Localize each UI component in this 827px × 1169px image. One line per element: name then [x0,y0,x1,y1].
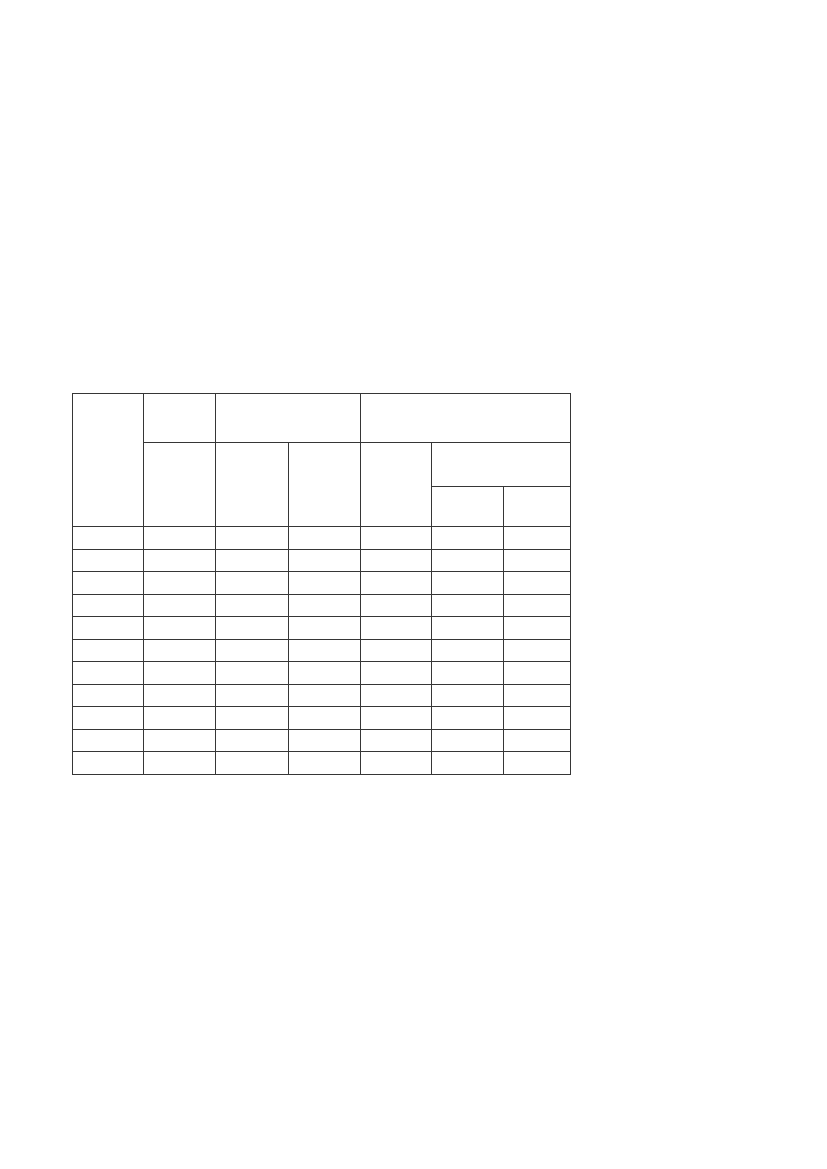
body-cell [361,549,432,572]
header-cell-col6-7-group [432,443,571,487]
body-cell [361,729,432,752]
body-cell [216,662,289,685]
body-cell [289,729,361,752]
body-cell [504,729,571,752]
body-cell [432,684,504,707]
body-cell [504,662,571,685]
document-page [0,0,827,1169]
body-cell [361,594,432,617]
body-cell [361,752,432,775]
body-cell [504,527,571,550]
body-cell [432,527,504,550]
body-cell [144,752,216,775]
body-cell [361,707,432,730]
body-cell [289,527,361,550]
header-cell-col5-7-group [361,394,571,443]
body-cell [289,572,361,595]
body-cell [361,527,432,550]
body-cell [73,572,144,595]
body-cell [432,572,504,595]
body-cell [432,594,504,617]
body-cell [361,684,432,707]
body-cell [216,752,289,775]
body-cell [73,527,144,550]
body-cell [504,594,571,617]
body-cell [144,729,216,752]
body-cell [289,639,361,662]
body-cell [144,707,216,730]
body-cell [216,549,289,572]
table-row [73,729,571,752]
body-cell [144,684,216,707]
body-cell [73,729,144,752]
header-row-1 [73,394,571,443]
body-cell [144,662,216,685]
body-cell [504,549,571,572]
body-cell [289,752,361,775]
body-cell [73,594,144,617]
body-cell [289,684,361,707]
header-cell-col2 [144,443,216,527]
body-cell [289,707,361,730]
body-cell [432,752,504,775]
body-cell [504,639,571,662]
body-cell [73,549,144,572]
body-cell [144,572,216,595]
header-cell-col6 [432,487,504,527]
body-cell [144,549,216,572]
body-cell [289,549,361,572]
body-cell [361,572,432,595]
body-cell [432,707,504,730]
body-cell [144,617,216,640]
body-cell [432,617,504,640]
body-cell [361,662,432,685]
table-row [73,549,571,572]
body-cell [73,617,144,640]
body-cell [73,707,144,730]
body-cell [144,639,216,662]
body-cell [73,684,144,707]
header-cell-col1 [73,394,144,527]
body-cell [432,639,504,662]
body-cell [216,527,289,550]
table-body [73,527,571,775]
body-cell [216,707,289,730]
body-cell [144,594,216,617]
body-cell [361,617,432,640]
body-cell [504,752,571,775]
body-cell [504,684,571,707]
body-cell [361,639,432,662]
body-cell [432,729,504,752]
table-header [73,394,571,527]
body-cell [73,752,144,775]
header-cell-col5 [361,443,432,527]
table-row [73,617,571,640]
table-row [73,594,571,617]
body-cell [73,662,144,685]
body-cell [216,594,289,617]
body-cell [216,639,289,662]
body-cell [504,707,571,730]
body-cell [73,639,144,662]
header-row-2 [73,443,571,487]
body-cell [432,549,504,572]
body-cell [216,729,289,752]
body-cell [289,662,361,685]
body-cell [289,617,361,640]
body-cell [432,662,504,685]
body-cell [504,617,571,640]
header-cell-col2-top [144,394,216,443]
table-row [73,572,571,595]
body-cell [504,572,571,595]
body-cell [289,594,361,617]
table-row [73,707,571,730]
table-row [73,527,571,550]
empty-table [72,393,571,775]
table-row [73,662,571,685]
body-cell [216,572,289,595]
body-cell [216,617,289,640]
header-cell-col4 [289,443,361,527]
table-row [73,639,571,662]
body-cell [216,684,289,707]
body-cell [144,527,216,550]
table-row [73,752,571,775]
header-cell-col3 [216,443,289,527]
header-cell-col7 [504,487,571,527]
header-cell-col3-4-group [216,394,361,443]
table-row [73,684,571,707]
